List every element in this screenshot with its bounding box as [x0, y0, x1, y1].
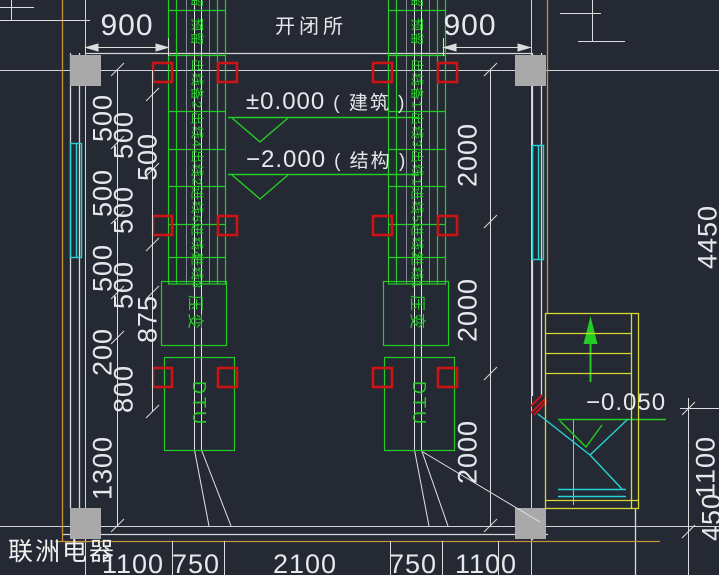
dim-right-inner: 2000 — [455, 420, 482, 484]
panel-cell: 进线6 — [191, 187, 204, 223]
dim-left: 800 — [111, 365, 138, 413]
dim-left: 1300 — [90, 436, 117, 500]
dim-bottom: 2100 — [273, 551, 337, 575]
pt-cabinet-label: 压变 — [186, 295, 202, 331]
elevation-structure-note: ( 结构 ) — [334, 146, 407, 173]
door-swing — [538, 414, 628, 497]
dim-left: 500 — [111, 186, 138, 234]
panel-cell: 出线备1 — [411, 59, 424, 109]
wall-edge-lines — [55, 0, 660, 542]
column-top-left — [70, 55, 101, 86]
dim-right-inner: 2000 — [455, 123, 482, 187]
door-hatch — [531, 395, 547, 415]
panel-cell: 出线备2 — [191, 59, 204, 109]
column-bottom-left — [70, 508, 101, 539]
panel-cell: 预留 — [411, 18, 424, 46]
panel-cell: 出线2 — [191, 150, 204, 186]
dim-far-right: 1100 — [693, 436, 719, 498]
panel-cell: 预留 — [191, 18, 204, 46]
floor-elevation-check-icon — [560, 421, 602, 447]
elevation-structure-value: −2.000 — [246, 146, 326, 174]
column-bottom-right — [515, 508, 546, 539]
dim-bottom: 1100 — [102, 551, 164, 575]
elevation-building-note: ( 建筑 ) — [333, 88, 406, 115]
dim-far-right: 4450 — [695, 205, 719, 269]
dim-left: 875 — [135, 295, 162, 343]
panel-cell: 出线4 — [191, 112, 204, 148]
dim-top-right: 900 — [443, 11, 496, 41]
elevation-floor: −0.050 — [586, 391, 666, 415]
elevation-building-value: ±0.000 — [246, 88, 325, 116]
company-watermark: 联洲电器 — [8, 540, 116, 565]
panel-cell: 进线5 — [411, 187, 424, 223]
stairs-up-arrow-icon — [584, 316, 598, 382]
dim-far-right: 450 — [699, 493, 719, 541]
pt-cabinet-label: 压变 — [408, 295, 424, 331]
cad-canvas[interactable]: 开闭所 联洲电器 ±0.000 ( 建筑 ) −2.000 ( 结构 ) −0.… — [0, 0, 719, 575]
column-top-right — [515, 55, 546, 86]
room-title: 开闭所 — [275, 17, 347, 37]
panel-cell: 出线3 — [411, 112, 424, 148]
dim-right-inner: 2000 — [455, 278, 482, 342]
elevation-structure: −2.000 ( 结构 ) — [246, 146, 407, 174]
dim-bottom: 1100 — [455, 551, 517, 575]
elevation-marker-icon — [232, 175, 288, 199]
cable-lines — [195, 0, 541, 526]
elevation-building: ±0.000 ( 建筑 ) — [246, 88, 406, 116]
dim-bottom: 750 — [172, 551, 220, 575]
panel-cell: 进线1 — [411, 253, 424, 289]
dim-left: 500 — [135, 133, 162, 181]
dtu-label: DTU — [410, 381, 428, 427]
dtu-label: DTU — [190, 381, 208, 427]
panel-cell: 预留 — [411, 0, 424, 8]
dim-top-left: 900 — [100, 11, 153, 41]
cable-lines-faint — [187, 0, 430, 284]
panel-cell: 出线1 — [411, 150, 424, 186]
panel-cell: 预留 — [191, 0, 204, 8]
dim-bottom: 750 — [389, 551, 437, 575]
panel-cell: 进线3 — [191, 253, 204, 289]
elevation-marker-icon — [232, 118, 288, 142]
